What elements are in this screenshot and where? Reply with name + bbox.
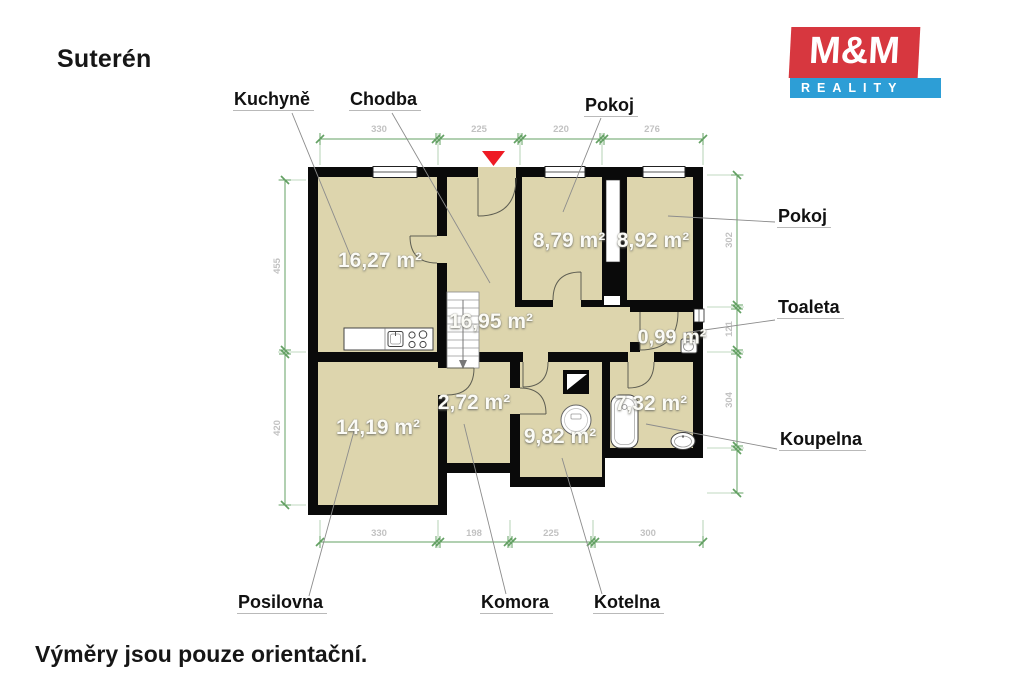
- logo-mm-mark: M&M: [789, 27, 921, 78]
- dim-top-2: 225: [471, 124, 488, 135]
- pokoj1-door-gap: [553, 300, 581, 312]
- washbasin-icon: [671, 433, 695, 450]
- entrance-marker-icon: [482, 151, 505, 166]
- area-pokoj-1: 8,79 m²: [533, 229, 605, 253]
- wall-opening: [604, 296, 620, 305]
- floorplan-page: 330 225 220 276 330 198 225 300 455 420 …: [0, 0, 1024, 683]
- disclaimer-text: Výměry jsou pouze orientační.: [35, 641, 367, 668]
- kitchen-counter: [344, 328, 433, 350]
- kotelna-door-gap: [523, 352, 548, 362]
- label-kuchyne: Kuchyně: [233, 90, 314, 111]
- label-komora: Komora: [480, 593, 553, 614]
- label-kotelna: Kotelna: [593, 593, 664, 614]
- label-koupelna: Koupelna: [779, 430, 866, 451]
- label-pokoj-top: Pokoj: [584, 96, 638, 117]
- dim-top-1: 330: [371, 124, 387, 135]
- dim-top-4: 276: [644, 124, 660, 135]
- dim-right-3: 304: [724, 391, 735, 408]
- area-kuchyne: 16,27 m²: [338, 249, 422, 273]
- area-posilovna: 14,19 m²: [336, 416, 420, 440]
- label-toaleta: Toaleta: [777, 298, 844, 319]
- chimney: [563, 370, 589, 394]
- area-toaleta: 0,99 m²: [638, 327, 707, 350]
- area-komora: 2,72 m²: [438, 391, 510, 415]
- dim-bottom-3: 225: [543, 528, 560, 539]
- dim-top-3: 220: [553, 124, 569, 135]
- dim-bottom-2: 198: [466, 528, 482, 539]
- area-koupelna: 7,32 m²: [615, 392, 687, 416]
- label-posilovna: Posilovna: [237, 593, 327, 614]
- logo-reality-bar: REALITY: [790, 78, 941, 98]
- dim-left-2: 420: [272, 420, 283, 436]
- kitchen-door-gap: [437, 236, 447, 263]
- dim-right-1: 302: [724, 232, 735, 248]
- area-kotelna: 9,82 m²: [524, 425, 596, 449]
- dim-bottom-1: 330: [371, 528, 387, 539]
- agency-logo: M&M REALITY: [790, 27, 950, 98]
- komora-door-gap: [510, 388, 520, 414]
- room-chodba-vertical: [447, 177, 515, 307]
- dim-left-1: 455: [272, 257, 283, 274]
- label-chodba: Chodba: [349, 90, 421, 111]
- area-chodba: 16,95 m²: [449, 310, 533, 334]
- label-pokoj-right: Pokoj: [777, 207, 831, 228]
- dim-bottom-4: 300: [640, 528, 656, 539]
- entry-door-gap: [478, 167, 516, 178]
- page-title: Suterén: [57, 45, 151, 74]
- dim-right-2: 121: [724, 320, 735, 337]
- koupelna-door-gap: [628, 352, 654, 362]
- sink-icon: [388, 332, 403, 347]
- floorplan-drawing: 330 225 220 276 330 198 225 300 455 420 …: [0, 0, 1024, 683]
- area-pokoj-2: 8,92 m²: [617, 229, 689, 253]
